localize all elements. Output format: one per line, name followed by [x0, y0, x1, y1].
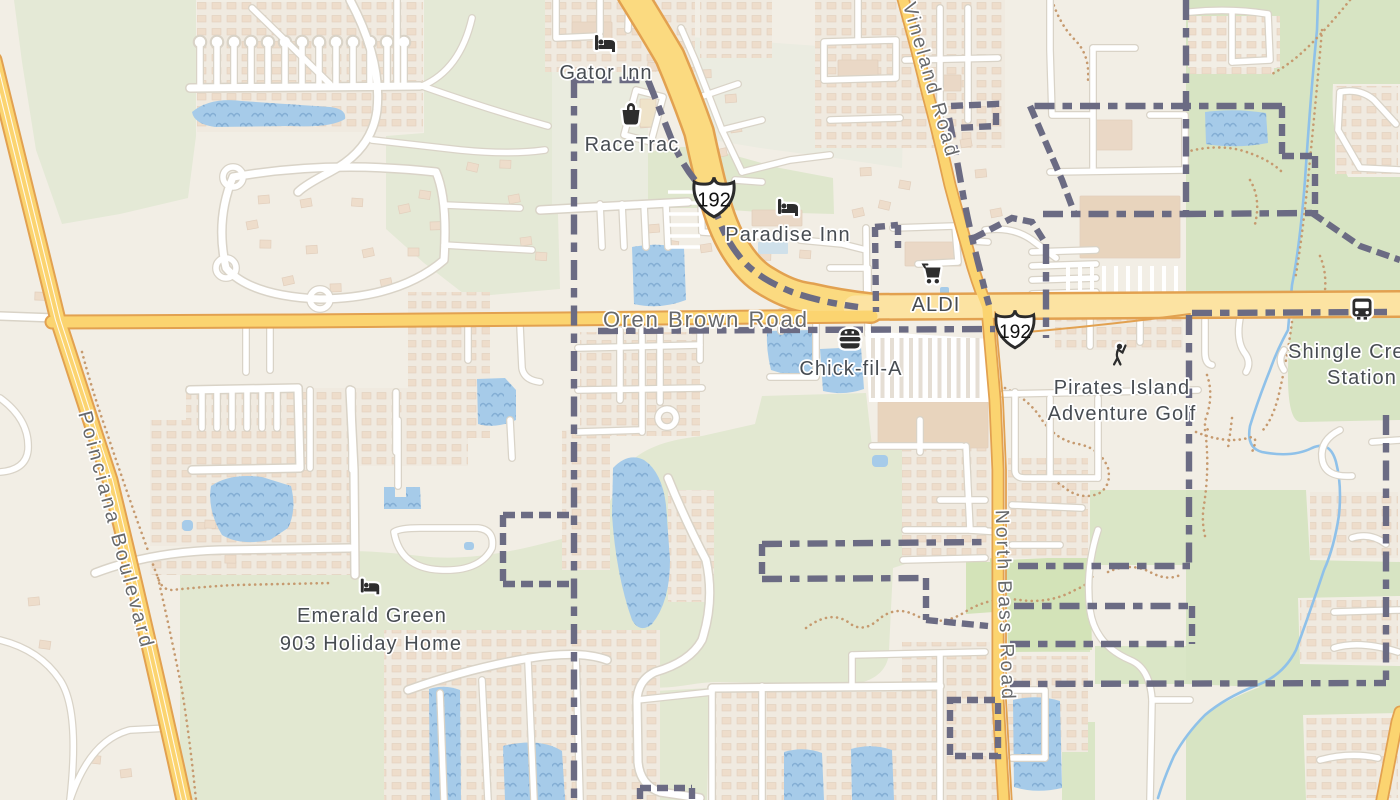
svg-text:Emerald Green: Emerald Green — [297, 605, 447, 627]
svg-text:RaceTrac: RaceTrac — [585, 134, 680, 156]
svg-text:Adventure Golf: Adventure Golf — [1048, 403, 1197, 425]
svg-text:192: 192 — [999, 322, 1031, 343]
svg-text:903 Holiday Home: 903 Holiday Home — [280, 633, 462, 655]
svg-text:Station: Station — [1327, 367, 1397, 389]
svg-text:ALDI: ALDI — [912, 294, 961, 316]
svg-text:Gator Inn: Gator Inn — [559, 62, 652, 84]
svg-text:Shingle Creek: Shingle Creek — [1288, 341, 1400, 363]
svg-text:Pirates Island: Pirates Island — [1054, 377, 1191, 399]
svg-text:Paradise Inn: Paradise Inn — [725, 224, 851, 246]
svg-text:Chick-fil-A: Chick-fil-A — [799, 358, 902, 380]
svg-text:Oren Brown Road: Oren Brown Road — [603, 307, 809, 332]
svg-text:192: 192 — [697, 189, 731, 211]
